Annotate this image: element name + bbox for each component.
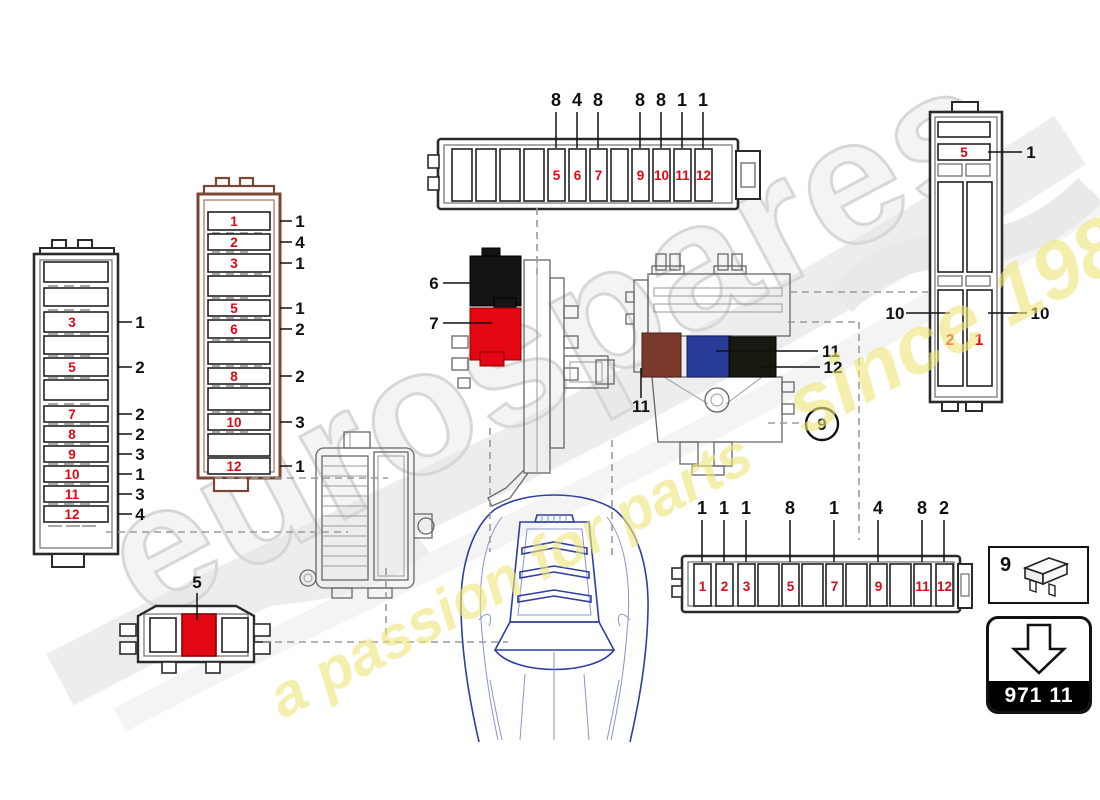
- callout-label: 2: [939, 498, 949, 518]
- callout-label: 1: [677, 90, 687, 110]
- callout-label: 2: [135, 358, 144, 377]
- callout-label: 10: [886, 304, 905, 323]
- callout-label: 1: [741, 498, 751, 518]
- callout-label: 8: [917, 498, 927, 518]
- callout-label: 1: [135, 465, 144, 484]
- callout-label: 1: [1026, 143, 1035, 162]
- callout-label: 1: [698, 90, 708, 110]
- callout-label: 1: [295, 254, 304, 273]
- callout-label: 1: [719, 498, 729, 518]
- callout-label: 8: [551, 90, 561, 110]
- callout-label: 4: [572, 90, 582, 110]
- callout-label: 2: [295, 367, 304, 386]
- callout-label: 3: [295, 413, 304, 432]
- callout-overlay: 8 4 8 8 8 1 1 1 2 2 2 3 1 3 4 1 4 1 1 2 …: [0, 0, 1100, 800]
- callout-label: 4: [135, 505, 145, 524]
- callout-label: 1: [135, 313, 144, 332]
- callout-label: 2: [135, 405, 144, 424]
- callout-label: 4: [295, 233, 305, 252]
- callout-label: 8: [785, 498, 795, 518]
- callout-label: 10: [1031, 304, 1050, 323]
- callout-label: 3: [135, 445, 144, 464]
- callout-label: 8: [656, 90, 666, 110]
- callout-label: 1: [829, 498, 839, 518]
- callout-label: 1: [295, 299, 304, 318]
- callout-label: 6: [429, 274, 438, 293]
- callout-label: 5: [192, 573, 201, 592]
- callout-label: 8: [593, 90, 603, 110]
- callout-label: 7: [429, 314, 438, 333]
- fusebox-parts-diagram: eurospares 5 6 7 9: [0, 0, 1100, 800]
- callout-label: 4: [873, 498, 883, 518]
- callout-label: 8: [635, 90, 645, 110]
- callout-label: 2: [295, 320, 304, 339]
- callout-label: 3: [135, 485, 144, 504]
- callout-labels: 8 4 8 8 8 1 1 1 2 2 2 3 1 3 4 1 4 1 1 2 …: [135, 90, 1049, 592]
- leader-lines: [118, 112, 1027, 620]
- dashed-connectors: [106, 208, 928, 642]
- callout-label: 1: [295, 457, 304, 476]
- callout-label: 1: [697, 498, 707, 518]
- callout-label: 11: [632, 397, 650, 416]
- circled-callout-9: 9: [806, 408, 838, 440]
- callout-label: 12: [824, 358, 843, 377]
- callout-label: 9: [817, 415, 826, 434]
- callout-label: 2: [135, 425, 144, 444]
- callout-label: 1: [295, 212, 304, 231]
